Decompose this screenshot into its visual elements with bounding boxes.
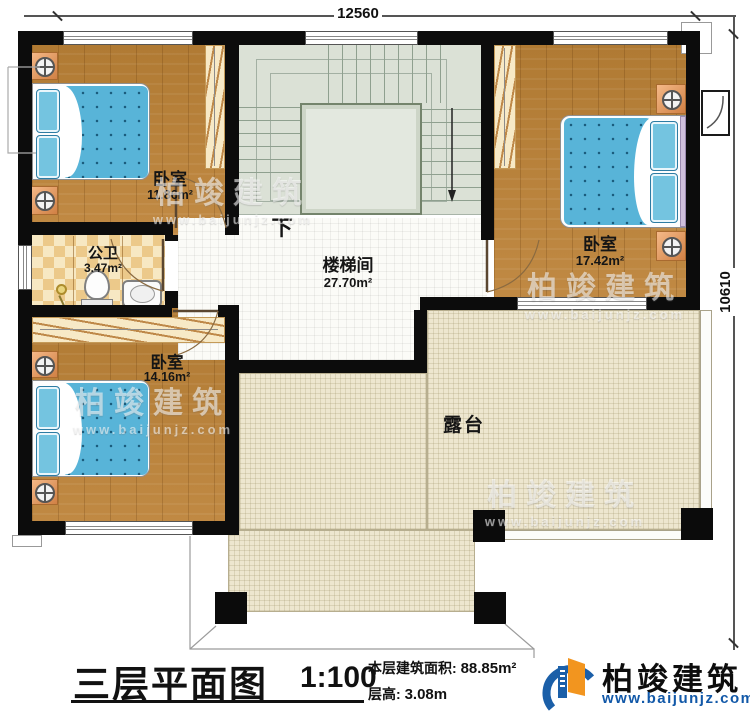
nightstand bbox=[30, 479, 58, 505]
lamp-icon bbox=[35, 356, 55, 376]
wardrobe bbox=[494, 45, 516, 169]
brand-logo-icon bbox=[538, 652, 596, 714]
wall-bedroom1-south bbox=[18, 222, 173, 235]
logo-window bbox=[560, 670, 565, 672]
pillow bbox=[650, 173, 678, 223]
stair-direction-label: 下 bbox=[264, 217, 300, 240]
window-bedroom3-south bbox=[65, 521, 193, 535]
floor-drain-icon bbox=[56, 284, 67, 295]
lamp-icon bbox=[35, 483, 55, 503]
floor-height-label: 层高: bbox=[368, 686, 401, 702]
terrace-floor-left bbox=[239, 373, 427, 530]
logo-building-orange bbox=[568, 658, 585, 696]
window-stairwell-north bbox=[305, 31, 418, 45]
window-bathroom-west bbox=[18, 245, 32, 290]
terrace-parapet-right bbox=[700, 310, 712, 540]
stair-treads-right bbox=[422, 103, 481, 201]
lamp-icon bbox=[35, 57, 55, 77]
lamp-icon bbox=[662, 90, 682, 110]
lamp-icon bbox=[662, 237, 682, 257]
floor-height-text: 层高: 3.08m bbox=[368, 684, 447, 704]
stair-treads-top bbox=[328, 45, 444, 103]
stair-void bbox=[300, 103, 422, 215]
terrace-parapet-bottom bbox=[480, 530, 712, 540]
eaves-diagonal bbox=[505, 624, 534, 649]
terrace-column-4 bbox=[215, 592, 247, 624]
terrace-column-3 bbox=[474, 592, 506, 624]
room-label-bedroom1: 卧室 bbox=[130, 171, 210, 190]
wall-end-sill bbox=[12, 535, 42, 547]
logo-window bbox=[560, 680, 565, 682]
nightstand bbox=[30, 186, 58, 215]
floor-area-label: 本层建筑面积: bbox=[368, 660, 457, 676]
wall-bathroom-east-stub bbox=[165, 235, 178, 241]
pillow bbox=[36, 386, 60, 430]
pillow bbox=[36, 432, 60, 476]
wall-stair-bedroom2 bbox=[481, 44, 494, 240]
nightstand bbox=[656, 84, 686, 114]
wall-bedroom1-east bbox=[225, 44, 239, 235]
floor-plan-canvas: 卧室 11.86m² 公卫 3.47m² 楼梯间 27.70m² 卧室 17.4… bbox=[0, 0, 750, 718]
floor-area-value: 88.85m² bbox=[461, 660, 517, 677]
terrace-column-2 bbox=[681, 508, 713, 540]
room-label-bedroom2: 卧室 bbox=[560, 236, 640, 255]
wall-right bbox=[686, 31, 700, 310]
plan-scale: 1:100 bbox=[300, 661, 377, 695]
room-area-bedroom2: 17.42m² bbox=[550, 254, 650, 268]
lamp-icon bbox=[35, 191, 55, 211]
window-bedroom2-north bbox=[553, 31, 668, 45]
room-label-terrace: 露台 bbox=[428, 416, 500, 437]
dimension-height: 10610 bbox=[717, 268, 735, 316]
nightstand bbox=[30, 351, 58, 378]
wardrobe-rod bbox=[40, 329, 218, 330]
room-area-bedroom1: 11.86m² bbox=[120, 189, 220, 203]
pillow bbox=[36, 89, 60, 133]
floor-height-value: 3.08m bbox=[405, 686, 448, 703]
title-underline bbox=[71, 700, 364, 703]
pillow bbox=[650, 121, 678, 171]
logo-window bbox=[560, 675, 565, 677]
logo-window bbox=[560, 685, 565, 687]
room-area-stairwell: 27.70m² bbox=[298, 276, 398, 290]
terrace-floor-lower bbox=[228, 530, 475, 612]
stair-treads-left bbox=[239, 103, 300, 173]
wardrobe bbox=[205, 45, 225, 169]
pillow bbox=[36, 135, 60, 179]
wardrobe-rod bbox=[214, 48, 215, 166]
nightstand bbox=[656, 231, 686, 261]
sink-basin bbox=[130, 285, 155, 303]
wardrobe bbox=[32, 317, 225, 343]
window-bedroom2-south bbox=[517, 297, 647, 310]
window-bedroom1-north bbox=[63, 31, 193, 45]
ac-unit-icon bbox=[701, 90, 730, 136]
room-label-stairwell: 楼梯间 bbox=[298, 257, 398, 276]
room-area-bedroom3: 14.16m² bbox=[117, 371, 217, 385]
nightstand bbox=[30, 52, 58, 80]
floor-area-text: 本层建筑面积: 88.85m² bbox=[368, 658, 516, 678]
dimension-width: 12560 bbox=[334, 5, 382, 23]
dimension-line-right bbox=[733, 17, 735, 650]
terrace-column-1 bbox=[473, 510, 505, 542]
wardrobe-rod bbox=[504, 48, 505, 166]
wall-hallway-south bbox=[227, 360, 427, 373]
wall-bathroom-south bbox=[18, 305, 172, 317]
room-area-bathroom: 3.47m² bbox=[63, 262, 143, 275]
eaves-diagonal bbox=[190, 626, 216, 649]
brand-website: www.baijunjz.com bbox=[602, 690, 750, 707]
wall-bedroom3-east bbox=[225, 305, 239, 535]
